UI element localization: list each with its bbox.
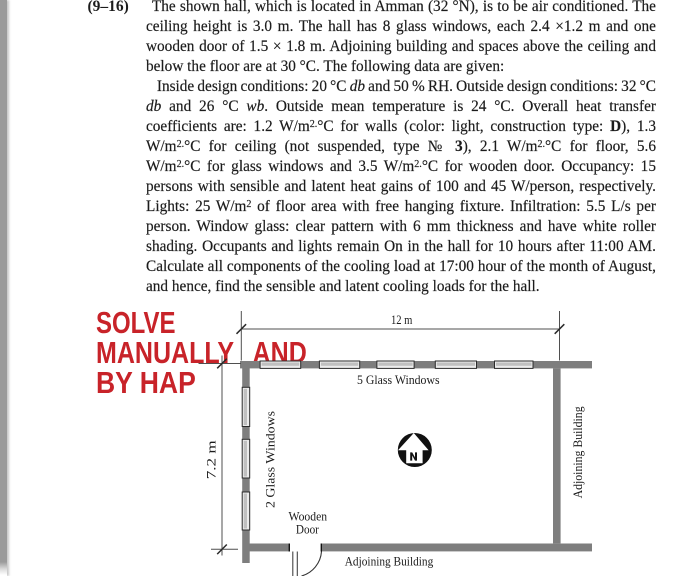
- svg-text:12 m: 12 m: [391, 312, 413, 327]
- svg-text:Adjoining Building: Adjoining Building: [570, 406, 585, 498]
- svg-text:2 Glass Windows: 2 Glass Windows: [263, 411, 278, 508]
- svg-text:Door: Door: [296, 523, 320, 537]
- svg-text:5 Glass Windows: 5 Glass Windows: [357, 372, 440, 387]
- svg-text:Wooden: Wooden: [289, 509, 328, 523]
- svg-text:7.2 m: 7.2 m: [204, 440, 219, 479]
- svg-text:Adjoining Building: Adjoining Building: [345, 554, 434, 569]
